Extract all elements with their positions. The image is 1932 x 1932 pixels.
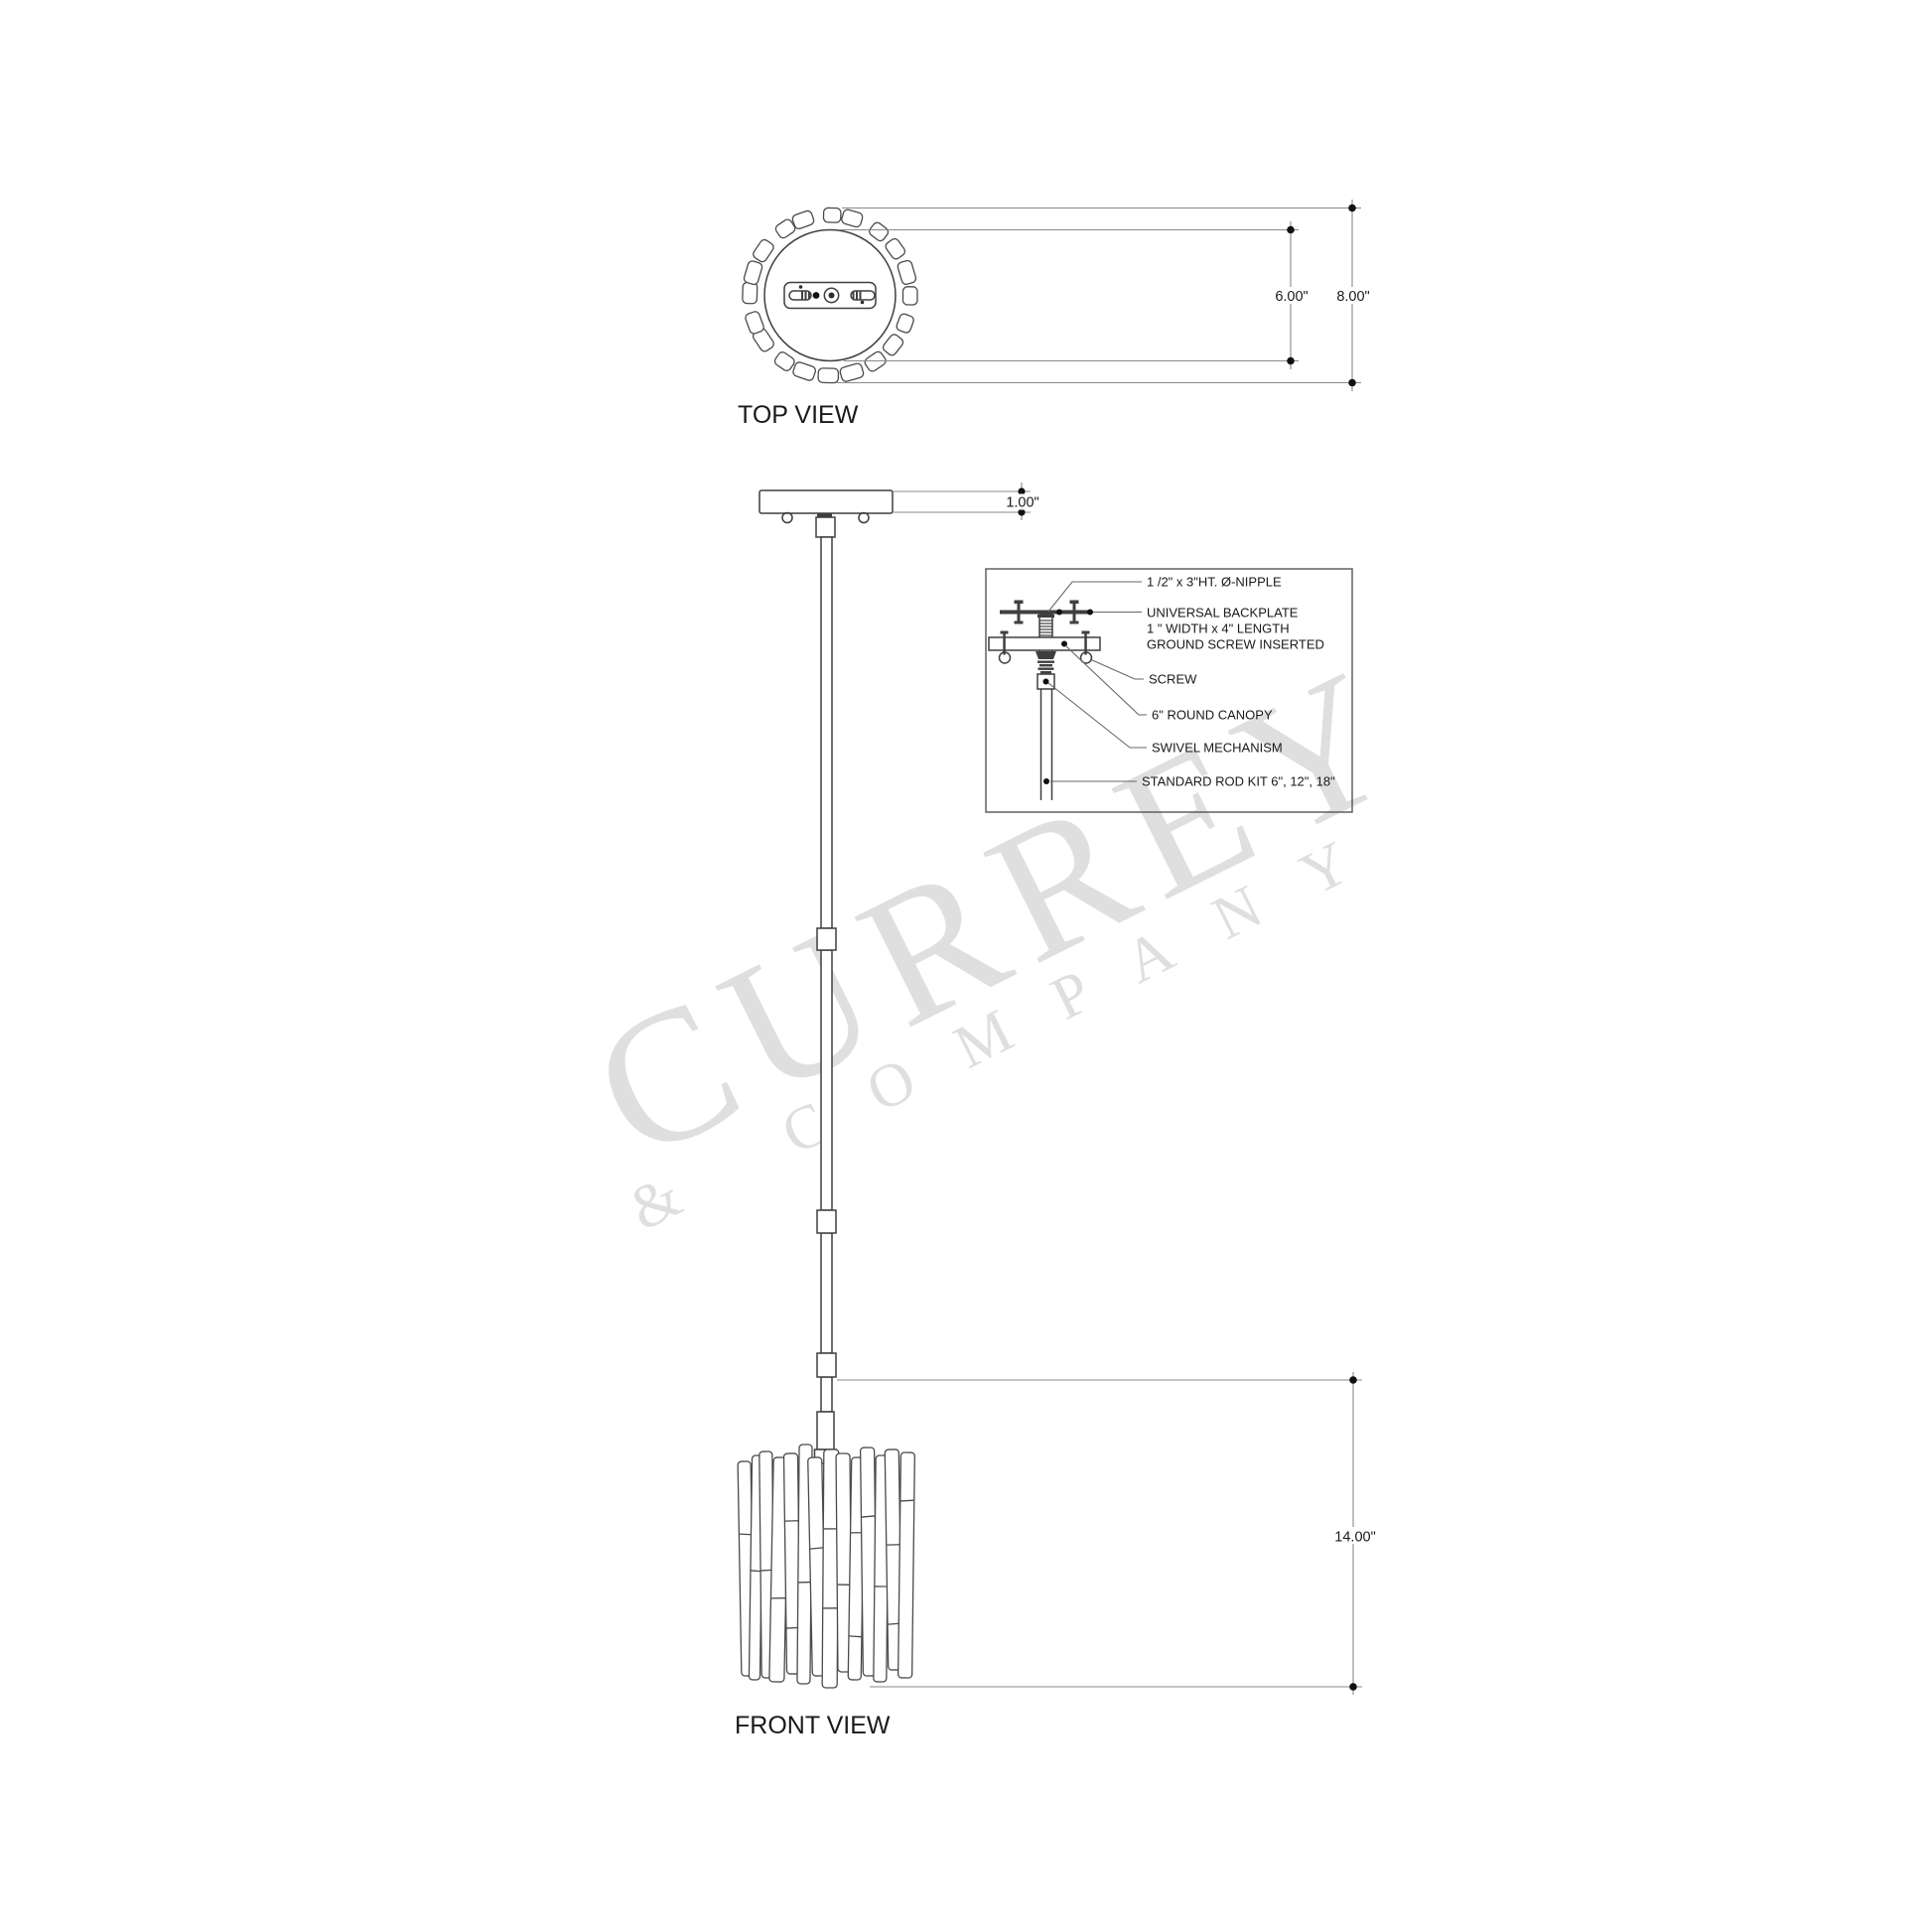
backplate-center-hole <box>829 293 835 299</box>
callout-swivel: SWIVEL MECHANISM <box>1152 741 1283 756</box>
detail-locknut <box>1035 651 1056 659</box>
backplate-screw-bottom <box>861 301 865 305</box>
top-view-title: TOP VIEW <box>738 401 859 429</box>
rod-coupler-1 <box>817 928 836 950</box>
ring-segment <box>752 238 775 264</box>
ring-segment <box>902 287 917 305</box>
ring-segment <box>897 259 916 285</box>
front-shade-stem <box>817 1412 834 1449</box>
front-shade-dimension: 14.00" <box>837 1372 1380 1695</box>
front-canopy-screw-left <box>782 513 792 523</box>
top-view: 6.00" 8.00" TOP VIEW <box>738 200 1373 429</box>
top-view-dim-8in: 8.00" <box>1336 289 1369 305</box>
front-dim-14in: 14.00" <box>1334 1530 1375 1546</box>
front-swivel-block <box>816 517 835 537</box>
ring-segment <box>818 368 838 383</box>
ring-segment <box>773 350 796 372</box>
backplate-right-slot-nut <box>853 292 862 300</box>
rod-coupler-2 <box>817 1210 836 1233</box>
ring-segment <box>745 311 765 336</box>
watermark: CURREY & COMPANY <box>564 624 1438 1244</box>
ring-segment <box>896 313 915 334</box>
rod-coupler-3 <box>817 1353 836 1377</box>
callout-nipple: 1 /2" x 3"HT. Ø-NIPPLE <box>1147 575 1282 590</box>
ring-segment <box>839 362 864 382</box>
front-dim-1in: 1.00" <box>1006 495 1038 511</box>
detail-swivel-spring <box>1037 661 1054 674</box>
ring-segment <box>868 220 890 242</box>
backplate-left-slot-nut <box>801 292 810 300</box>
front-view-title: FRONT VIEW <box>735 1712 891 1739</box>
ring-segment <box>882 333 905 356</box>
ring-segment <box>841 208 864 227</box>
ring-segment <box>863 350 887 373</box>
callout-rod-kit: STANDARD ROD KIT 6", 12", 18" <box>1142 774 1335 789</box>
callout-backplate-line3: GROUND SCREW INSERTED <box>1147 637 1324 652</box>
ring-segment <box>884 237 906 261</box>
front-canopy-screw-right <box>859 513 869 523</box>
backplate-wire-hole <box>813 292 820 299</box>
top-view-backplate <box>784 283 876 309</box>
front-shade-slats <box>738 1445 914 1688</box>
backplate-screw-top <box>799 285 803 289</box>
technical-drawing: CURREY & COMPANY <box>0 0 1932 1932</box>
callout-backplate-line2: 1 " WIDTH x 4" LENGTH <box>1147 621 1290 636</box>
front-canopy <box>759 490 893 513</box>
ring-segment <box>791 209 815 229</box>
callout-backplate-line1: UNIVERSAL BACKPLATE <box>1147 606 1299 621</box>
front-canopy-dimension: 1.00" <box>893 483 1042 520</box>
spec-sheet-page: CURREY & COMPANY <box>0 0 1932 1932</box>
top-view-dim-6in: 6.00" <box>1275 289 1308 305</box>
ring-segment <box>823 207 841 222</box>
ring-segment <box>743 260 762 286</box>
ring-segment <box>743 282 758 304</box>
shade-slat <box>898 1452 915 1678</box>
callout-screw: SCREW <box>1149 672 1197 687</box>
callout-canopy: 6" ROUND CANOPY <box>1152 708 1273 723</box>
ring-segment <box>792 361 817 382</box>
